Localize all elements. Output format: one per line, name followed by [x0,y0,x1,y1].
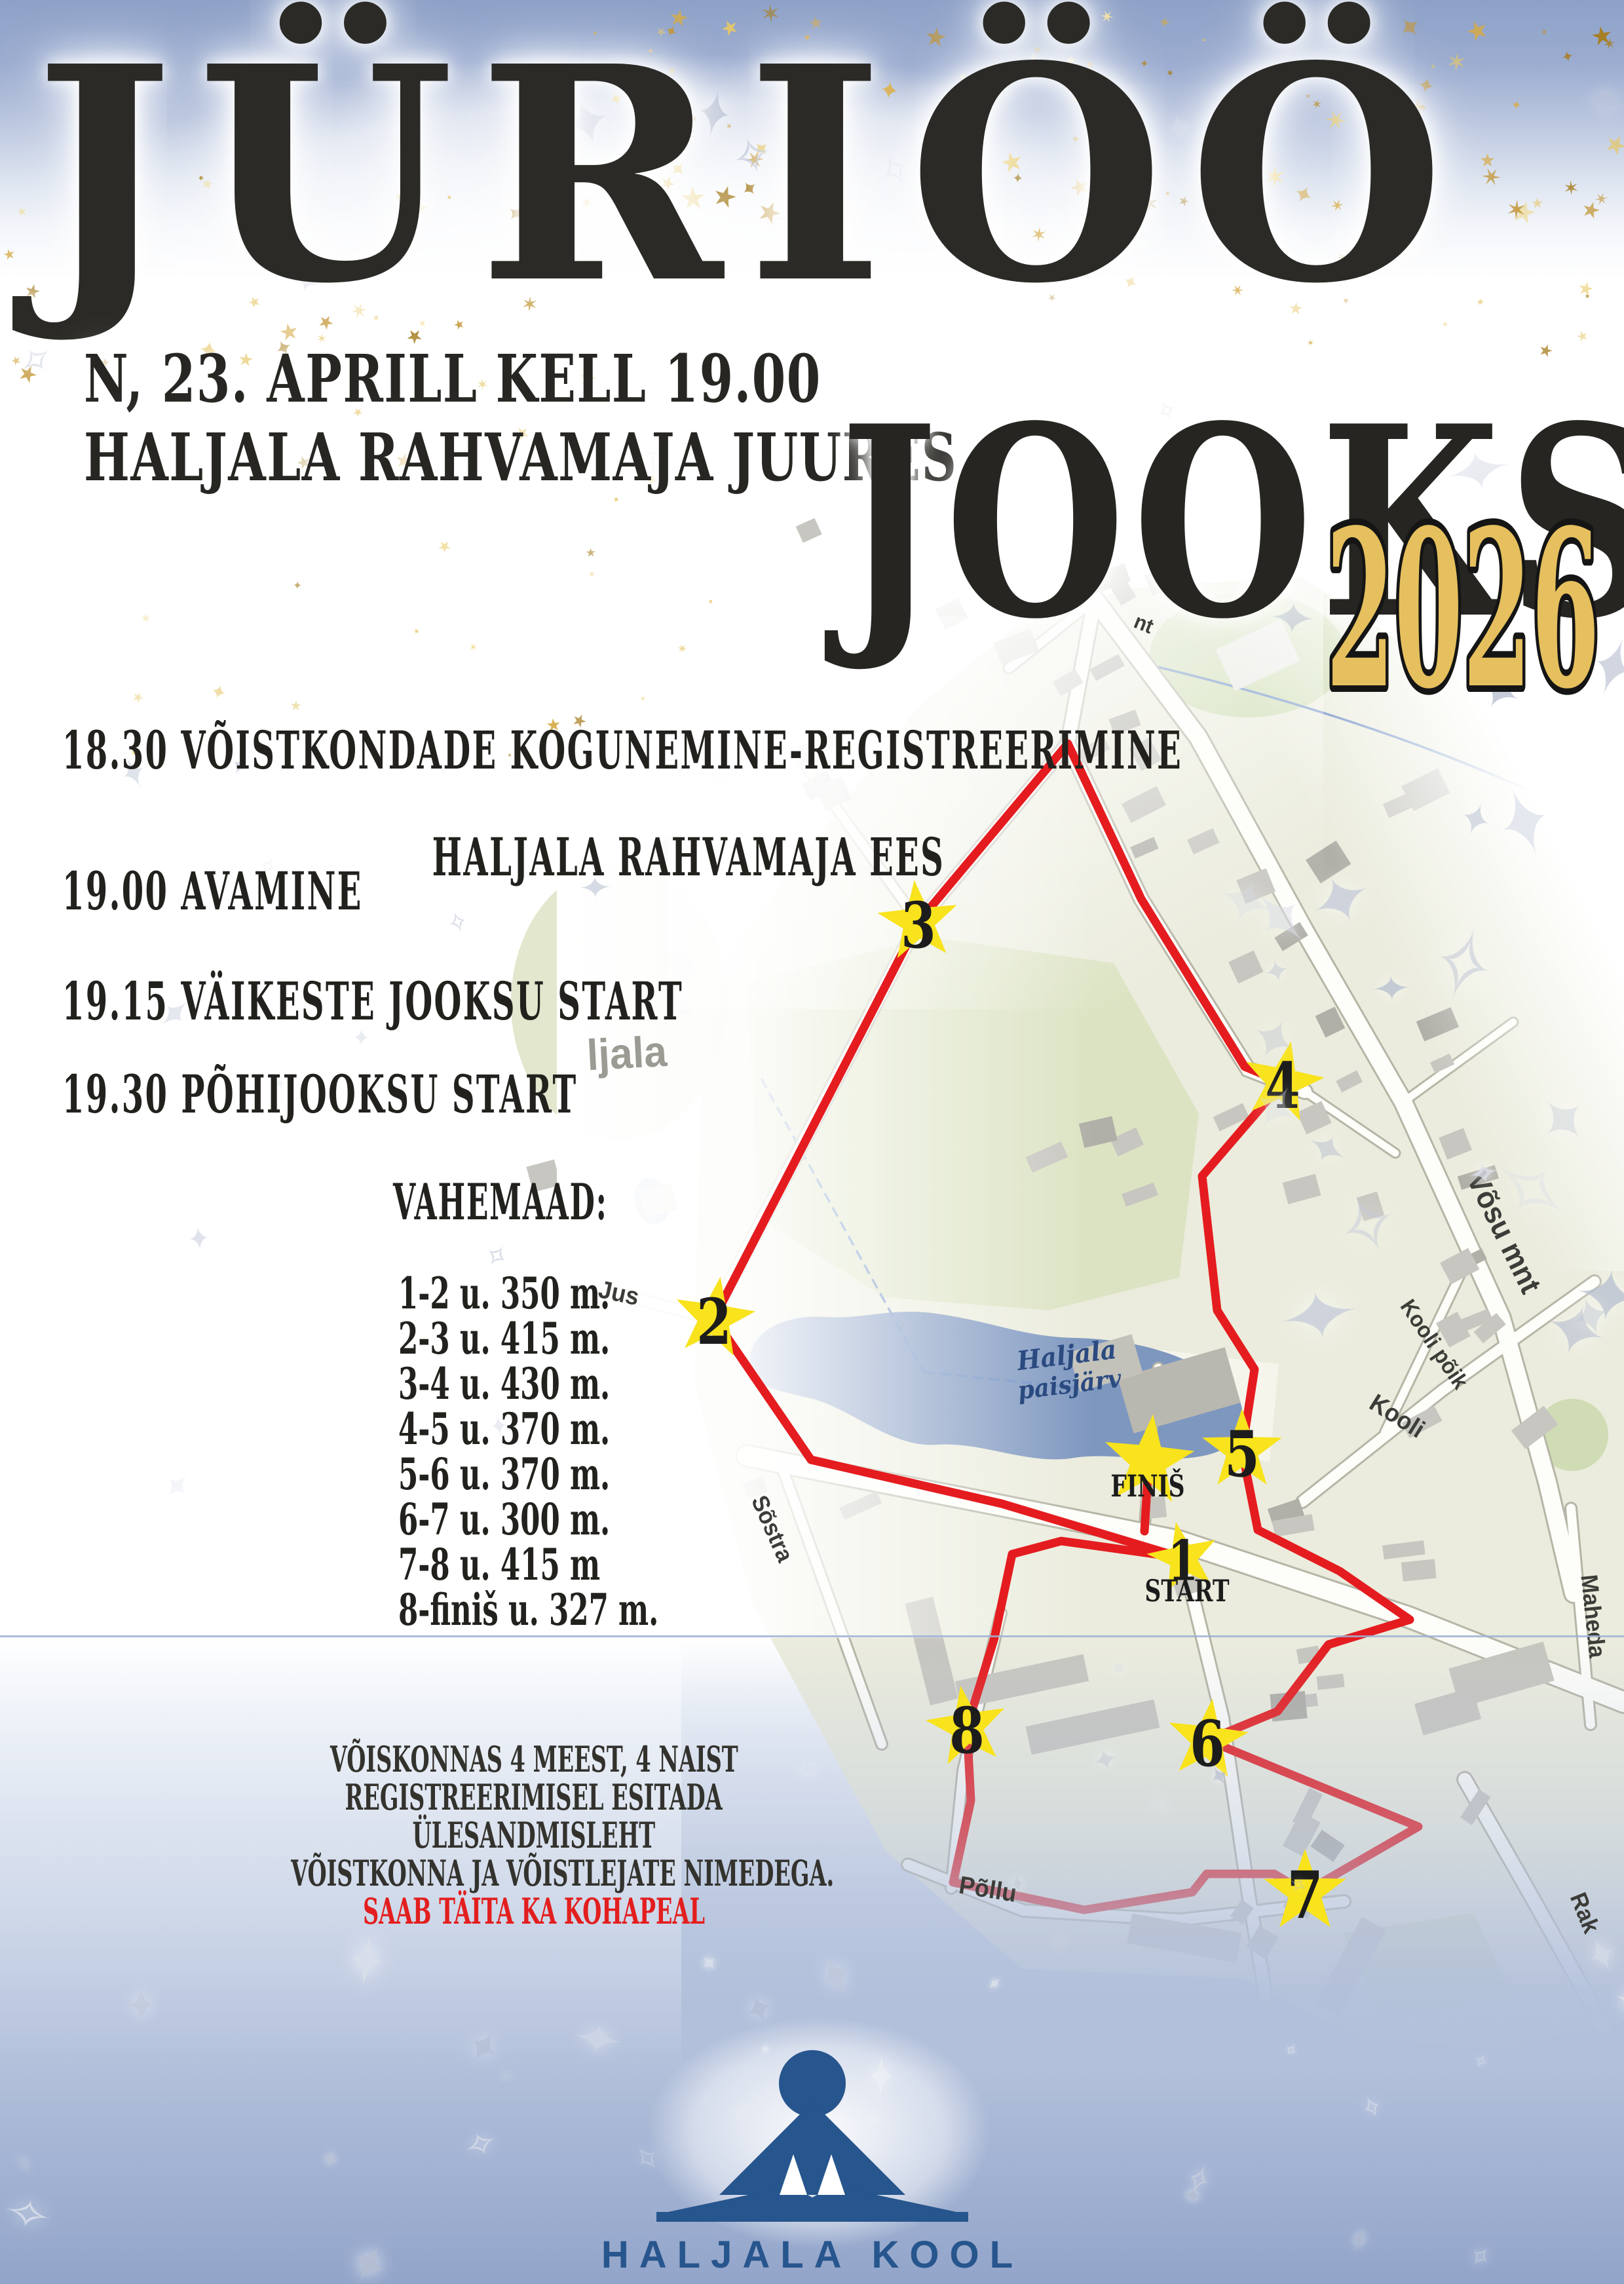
team-info-line: ÜLESANDMISLEHT [124,1816,943,1854]
start-label-text: START [1144,1573,1229,1608]
poster-title: JÜRIÖÖ [34,21,1469,331]
team-info-highlight: SAAB TÄITA KA KOHAPEAL [124,1892,943,1930]
finish-label: FINIŠ [1110,1468,1184,1504]
building [1401,1559,1437,1582]
schedule-item-opening: 19.00 AVAMINE [62,865,563,917]
schedule-item-kids-start: 19.15 VÄIKESTE JOOKSU START [62,975,1097,1027]
distances-heading: VAHEMAAD: [393,1173,763,1231]
event-year: 2026 [1321,516,1609,713]
sparkle-icon: ✦ [127,1977,157,2030]
distance-item: 2-3 u. 415 m. [398,1316,793,1361]
event-place-line: HALJALA RAHVAMAJA JUURES [84,418,957,497]
event-date-line: N, 23. APRILL KELL 19.00 [84,339,821,418]
route-star-number-text: 3 [901,888,935,962]
distance-item: 7-8 u. 415 m [398,1542,793,1588]
gold-star-icon: ✦ [293,579,303,590]
sparkle-icon: ✦ [187,1219,212,1254]
reader-icon [656,2050,968,2222]
schedule-item-kids-start-text: 19.15 VÄIKESTE JOOKSU START [62,975,683,1027]
schedule-item-opening-text: 19.00 AVAMINE [62,865,363,917]
distance-item: 1-2 u. 350 m. [398,1271,793,1316]
team-info-line: VÕISKONNAS 4 MEEST, 4 NAIST [124,1740,943,1778]
gold-star-icon: ★ [141,613,151,625]
route-star-number: 8 [949,1693,984,1768]
building [796,518,822,543]
distance-item-text: 4-5 u. 370 m. [398,1407,610,1452]
route-star-number-text: 5 [1224,1417,1259,1491]
team-info-highlight-text: SAAB TÄITA KA KOHAPEAL [363,1892,705,1930]
team-info: VÕISKONNAS 4 MEEST, 4 NAIST REGISTREERIM… [124,1740,943,1930]
sparkle-icon: ✦ [1367,973,1420,1003]
team-info-line: VÕISTKONNA JA VÕISTLEJATE NIMEDEGA. [124,1854,943,1892]
distance-item: 6-7 u. 300 m. [398,1497,793,1542]
distance-item-text: 7-8 u. 415 m [398,1542,600,1588]
team-info-line-text: VÕISTKONNA JA VÕISTLEJATE NIMEDEGA. [291,1854,834,1892]
distance-item-text: 6-7 u. 300 m. [398,1497,610,1542]
distance-item: 4-5 u. 370 m. [398,1407,793,1452]
poster-title-text: JÜRIÖÖ [34,2,1469,349]
route-star-number: 3 [901,888,935,962]
team-info-line-text: VÕISKONNAS 4 MEEST, 4 NAIST [330,1740,738,1778]
finish-label-text: FINIŠ [1110,1468,1184,1504]
distance-item-text: 5-6 u. 370 m. [398,1452,610,1497]
event-year-text: 2026 [1326,483,1600,736]
team-info-line: REGISTREERIMISEL ESITADA [124,1778,943,1816]
distance-item-text: 1-2 u. 350 m. [398,1271,610,1316]
schedule-item-main-start: 19.30 PÕHIJOOKSU START [62,1068,921,1120]
distance-item-text: 8-finiš u. 327 m. [398,1588,658,1633]
gold-star-icon: ✶ [1562,178,1579,199]
schedule-item-main-start-text: 19.30 PÕHIJOOKSU START [62,1068,578,1120]
schedule-item-registration-line1: 18.30 VÕISTKONDADE KOGUNEMINE-REGISTREER… [62,724,1182,776]
team-info-line-text: REGISTREERIMISEL ESITADA [345,1778,723,1816]
schedule-item-registration: 18.30 VÕISTKONDADE KOGUNEMINE-REGISTREER… [62,724,1624,776]
gold-star-icon: ✶ [674,642,689,655]
start-label: START [1144,1573,1229,1608]
distance-item: 5-6 u. 370 m. [398,1452,793,1497]
gold-star-icon: ★ [2,248,16,261]
route-star-number: 5 [1224,1417,1259,1491]
distances-heading-text: VAHEMAAD: [393,1173,608,1231]
school-name: HALJALA KOOL [583,2233,1042,2277]
section-divider-line [0,1635,1624,1637]
event-poster: 12345678 Võsu mntKooli põikKooliMahedaSõ… [0,0,1624,2284]
distances-list: 1-2 u. 350 m. 2-3 u. 415 m. 3-4 u. 430 m… [398,1271,793,1633]
route-star-number-text: 8 [949,1693,984,1768]
distance-item: 3-4 u. 430 m. [398,1361,793,1407]
distance-item-text: 2-3 u. 415 m. [398,1316,610,1361]
distance-item: 8-finiš u. 327 m. [398,1588,793,1633]
distance-item-text: 3-4 u. 430 m. [398,1361,610,1407]
gold-star-icon: ★ [130,691,145,704]
team-info-line-text: ÜLESANDMISLEHT [413,1816,656,1854]
